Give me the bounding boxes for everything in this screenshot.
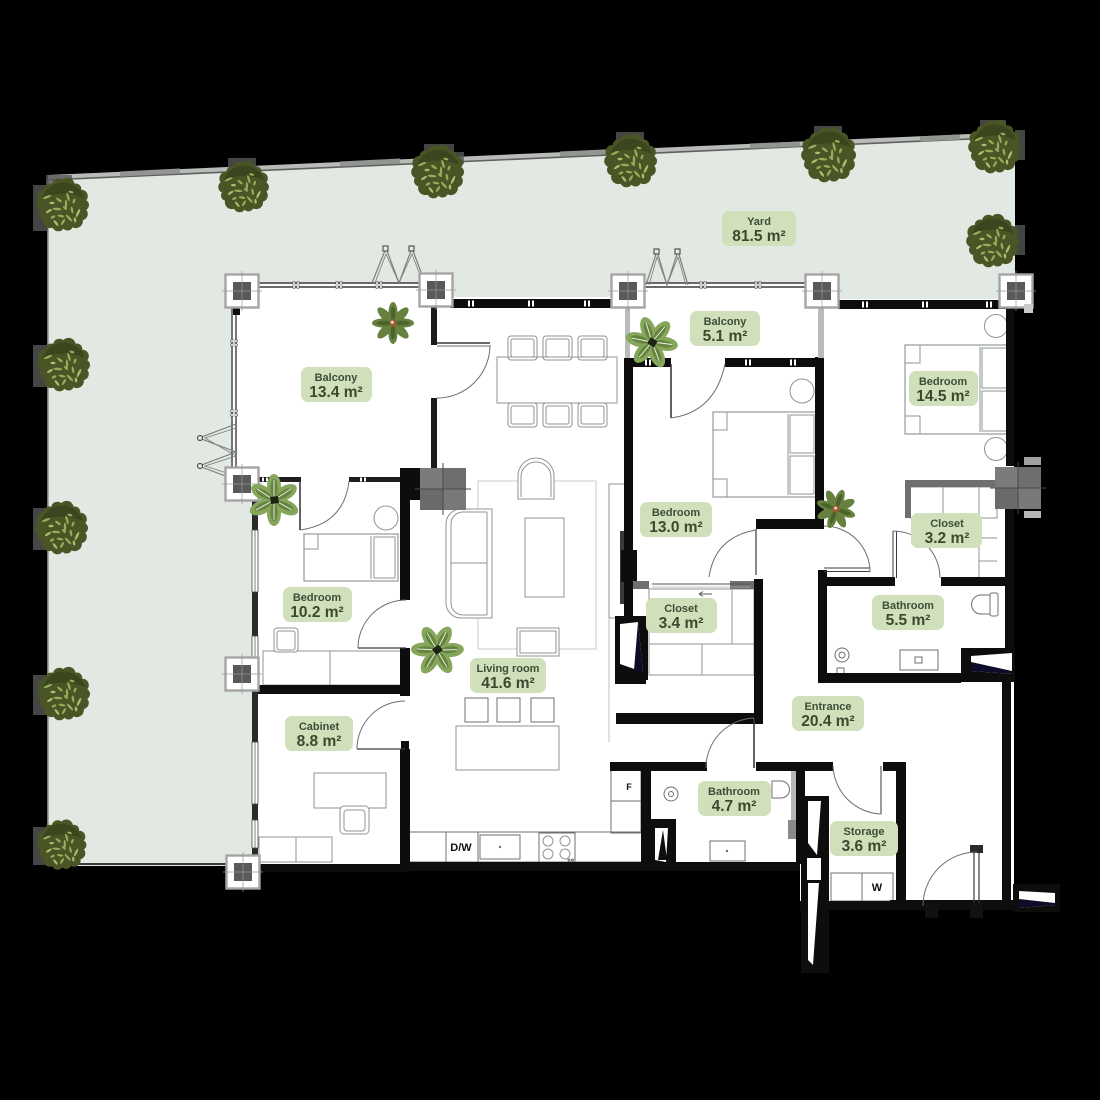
svg-text:Storage: Storage — [844, 826, 885, 838]
svg-text:3.4 m²: 3.4 m² — [659, 615, 704, 632]
svg-text:F: F — [626, 782, 632, 792]
svg-text:3.2 m²: 3.2 m² — [925, 530, 970, 547]
svg-text:Balcony: Balcony — [704, 316, 748, 328]
svg-text:Bedroom: Bedroom — [652, 507, 701, 519]
svg-text:8.8 m²: 8.8 m² — [297, 733, 342, 750]
svg-text:14.5 m²: 14.5 m² — [916, 388, 969, 405]
svg-text:41.6 m²: 41.6 m² — [481, 675, 534, 692]
svg-text:13.4 m²: 13.4 m² — [309, 384, 362, 401]
svg-text:Balcony: Balcony — [315, 372, 359, 384]
svg-text:5.5 m²: 5.5 m² — [886, 612, 931, 629]
svg-text:Closet: Closet — [664, 603, 698, 615]
svg-text:Bedroom: Bedroom — [919, 376, 968, 388]
svg-text:81.5 m²: 81.5 m² — [732, 228, 785, 245]
svg-text:D/W: D/W — [450, 842, 472, 854]
svg-text:Living room: Living room — [477, 663, 540, 675]
svg-text:Bedroom: Bedroom — [293, 592, 342, 604]
svg-text:4.7 m²: 4.7 m² — [712, 798, 757, 815]
svg-text:Bathroom: Bathroom — [882, 600, 934, 612]
svg-text:Yard: Yard — [747, 216, 771, 228]
svg-text:5.1 m²: 5.1 m² — [703, 328, 748, 345]
svg-text:20.4 m²: 20.4 m² — [801, 713, 854, 730]
svg-text:Closet: Closet — [930, 518, 964, 530]
svg-text:10.2 m²: 10.2 m² — [290, 604, 343, 621]
svg-text:W: W — [872, 882, 883, 894]
svg-text:Entrance: Entrance — [804, 701, 851, 713]
svg-text:3.6 m²: 3.6 m² — [842, 838, 887, 855]
svg-text:Bathroom: Bathroom — [708, 786, 760, 798]
svg-text:Cabinet: Cabinet — [299, 721, 340, 733]
svg-text:13.0 m²: 13.0 m² — [649, 519, 702, 536]
